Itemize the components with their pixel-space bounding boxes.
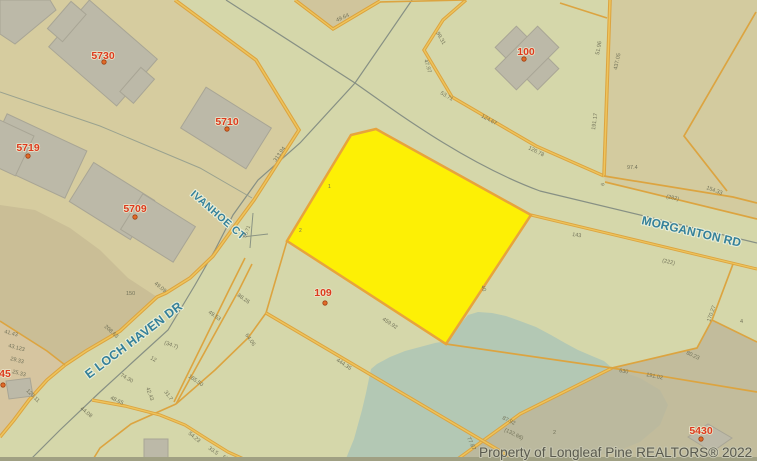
svg-text:5430: 5430 xyxy=(689,425,713,437)
svg-text:109: 109 xyxy=(314,287,332,299)
svg-text:5710: 5710 xyxy=(215,116,239,128)
svg-text:2: 2 xyxy=(553,430,556,436)
svg-text:Property of Longleaf Pine REAL: Property of Longleaf Pine REALTORS® 2022 xyxy=(479,445,752,460)
svg-text:97.4: 97.4 xyxy=(627,165,638,171)
svg-text:143: 143 xyxy=(572,232,582,239)
svg-text:45: 45 xyxy=(0,368,11,380)
svg-text:4: 4 xyxy=(740,319,743,325)
svg-text:5719: 5719 xyxy=(16,142,40,154)
svg-text:5709: 5709 xyxy=(123,203,147,215)
svg-text:2: 2 xyxy=(299,228,302,234)
svg-text:1: 1 xyxy=(328,184,331,190)
svg-text:100: 100 xyxy=(517,46,535,58)
svg-text:150: 150 xyxy=(126,291,135,297)
